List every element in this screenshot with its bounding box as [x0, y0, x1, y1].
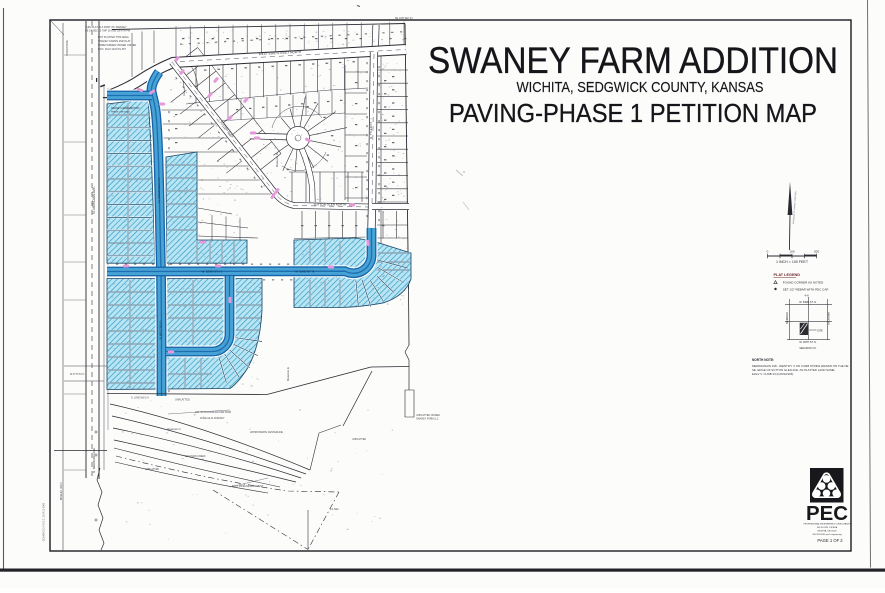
svg-text:SUTTON GLEN NORTH: SUTTON GLEN NORTH	[314, 202, 347, 206]
svg-text:WICHITA, SEDGWICK COUNTY, KANS: WICHITA, SEDGWICK COUNTY, KANSAS	[517, 80, 764, 96]
svg-text:N. TYLER CT.: N. TYLER CT.	[369, 121, 373, 139]
svg-text:PHASE ONE PLAT: PHASE ONE PLAT	[111, 111, 130, 114]
svg-text:SWANEY FARM LLC: SWANEY FARM LLC	[416, 418, 439, 421]
svg-text:SWANEY FARM ADDITION: SWANEY FARM ADDITION	[111, 107, 140, 110]
svg-text:303 SOUTH TOPEKA: 303 SOUTH TOPEKA	[817, 526, 838, 529]
svg-text:NORTH NOTE:: NORTH NOTE:	[752, 358, 774, 362]
svg-text:200: 200	[814, 250, 819, 254]
svg-text:APPROXIMATE CENTERLINE: APPROXIMATE CENTERLINE	[250, 431, 283, 434]
svg-text:PROFESSIONAL ENGINEERING CONSU: PROFESSIONAL ENGINEERING CONSULTANTS	[804, 523, 852, 526]
svg-text:UNPLATTED: UNPLATTED	[352, 438, 366, 441]
svg-text:N. WESTFIELD: N. WESTFIELD	[159, 321, 163, 340]
svg-text:1 INCH = 100 FEET: 1 INCH = 100 FEET	[776, 260, 809, 264]
svg-text:SEDGWICK CO.: SEDGWICK CO.	[799, 348, 817, 350]
svg-text:MERIDIAN: MERIDIAN	[786, 312, 789, 324]
svg-text:SITE: SITE	[817, 329, 823, 333]
svg-text:CALFSKIN CREEK: CALFSKIN CREEK	[185, 455, 206, 458]
svg-text:BROADWAY: BROADWAY	[828, 311, 831, 325]
svg-text:UNRECORDED OWNER UNITED: UNRECORDED OWNER UNITED	[98, 44, 136, 47]
svg-text:ELEV V. CURB 34 (KANSAS66): ELEV V. CURB 34 (KANSAS66)	[752, 372, 793, 376]
svg-text:100 YR FLOODPLAIN PER FIRM: 100 YR FLOODPLAIN PER FIRM	[195, 411, 231, 414]
svg-text:SET 1/2" REBAR WITH PEC CAP: SET 1/2" REBAR WITH PEC CAP	[783, 287, 829, 291]
svg-text:DOC. FILM 1234 PG 567: DOC. FILM 1234 PG 567	[98, 48, 127, 51]
svg-text:N. MERIDIAN AVE.: N. MERIDIAN AVE.	[92, 186, 96, 214]
svg-text:PLAT LEGEND: PLAT LEGEND	[774, 273, 801, 277]
svg-text:PAVING-PHASE 1 PETITION MAP: PAVING-PHASE 1 PETITION MAP	[449, 98, 817, 128]
svg-text:Reserve C: Reserve C	[167, 427, 180, 431]
svg-text:4-H: 4-H	[805, 294, 809, 297]
svg-text:THIS PLAT IS A PART OF SWANEY: THIS PLAT IS A PART OF SWANEY	[85, 25, 127, 29]
svg-text:ZONE AE FLOODWAY: ZONE AE FLOODWAY	[200, 417, 225, 420]
svg-text:100: 100	[789, 250, 794, 254]
svg-text:UNPLATTED: UNPLATTED	[175, 399, 190, 402]
svg-text:W 47TH ST N: W 47TH ST N	[70, 374, 85, 376]
svg-text:W. 52ND ST. N.: W. 52ND ST. N.	[295, 270, 315, 274]
svg-text:W. 52ND ST. N.: W. 52ND ST. N.	[201, 270, 222, 274]
svg-text:NOT PLATTED THIS AREA: NOT PLATTED THIS AREA	[98, 36, 129, 39]
svg-text:W. 53RD ST. N.: W. 53RD ST. N.	[799, 301, 817, 304]
svg-text:N. WESTFIELD ST.: N. WESTFIELD ST.	[157, 177, 161, 202]
svg-text:PEC: PEC	[806, 503, 848, 525]
svg-text:INTERSTATE: INTERSTATE	[65, 40, 69, 56]
svg-text:WICHITA, KS 67202: WICHITA, KS 67202	[818, 530, 838, 533]
svg-text:PAGE 1 OF 2: PAGE 1 OF 2	[817, 538, 843, 543]
svg-text:SCANNED 1/4 S.E.C. 23 FILE 004: SCANNED 1/4 S.E.C. 23 FILE 0042	[43, 502, 46, 541]
svg-text:NE 1/4 SEC 23 TWP 26 RGE 1W 6T: NE 1/4 SEC 23 TWP 26 RGE 1W 6TH PM	[85, 30, 130, 33]
svg-text:S. LINE NW 1/4: S. LINE NW 1/4	[131, 397, 149, 400]
svg-text:BM ELEV 1342.6: BM ELEV 1342.6	[61, 482, 63, 500]
svg-text:316 262-2691 pec1 engineering: 316 262-2691 pec1 engineering	[812, 533, 842, 536]
svg-text:W. 49TH ST. N.: W. 49TH ST. N.	[799, 341, 817, 344]
svg-text:NE COR SEC 23: NE COR SEC 23	[395, 18, 413, 20]
svg-text:1/4 SEC: 1/4 SEC	[330, 508, 339, 511]
svg-text:FOUND CORNER AS NOTED: FOUND CORNER AS NOTED	[783, 281, 824, 285]
svg-text:Reserve D: Reserve D	[275, 152, 279, 167]
svg-text:Reserve E: Reserve E	[286, 367, 290, 381]
svg-text:SWANEY FARM ADDITION: SWANEY FARM ADDITION	[428, 40, 838, 81]
svg-text:SWANEY FARMS 2ND PLAT: SWANEY FARMS 2ND PLAT	[98, 40, 131, 43]
